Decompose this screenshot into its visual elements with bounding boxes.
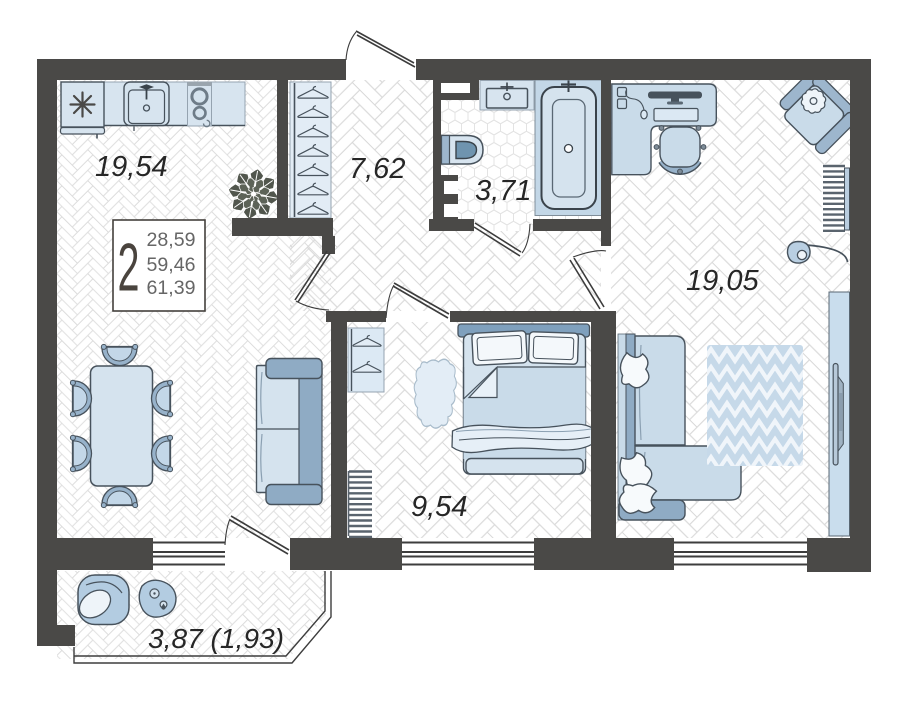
svg-text:7,62: 7,62 bbox=[349, 153, 405, 185]
svg-text:9,54: 9,54 bbox=[411, 491, 467, 523]
svg-text:19,05: 19,05 bbox=[686, 265, 759, 297]
svg-text:19,54: 19,54 bbox=[95, 151, 168, 183]
svg-text:2: 2 bbox=[118, 230, 140, 306]
svg-text:59,46: 59,46 bbox=[147, 254, 196, 276]
svg-text:3,87 (1,93): 3,87 (1,93) bbox=[148, 623, 284, 654]
svg-text:28,59: 28,59 bbox=[147, 229, 196, 251]
svg-text:61,39: 61,39 bbox=[147, 277, 196, 299]
svg-text:3,71: 3,71 bbox=[475, 175, 531, 207]
